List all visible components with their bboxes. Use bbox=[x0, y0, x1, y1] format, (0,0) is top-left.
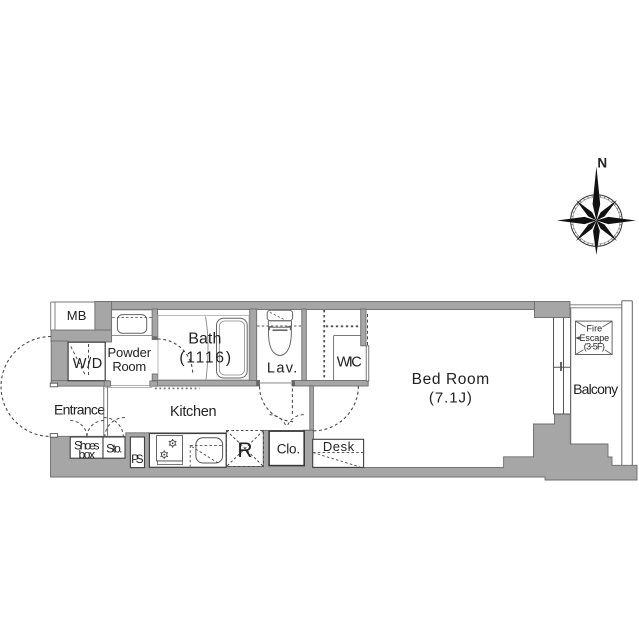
svg-text:N: N bbox=[597, 156, 607, 171]
svg-text:WIC: WIC bbox=[337, 354, 362, 370]
svg-text:Bath: Bath bbox=[188, 330, 221, 347]
svg-text:Sto.: Sto. bbox=[106, 441, 122, 455]
svg-text:Lav.: Lav. bbox=[267, 361, 297, 377]
svg-text:Desk: Desk bbox=[323, 439, 355, 454]
svg-text:Balcony: Balcony bbox=[573, 381, 618, 397]
svg-text:Bed Room: Bed Room bbox=[412, 371, 490, 388]
svg-text:Powder: Powder bbox=[107, 345, 151, 360]
svg-text:W/D: W/D bbox=[73, 356, 103, 372]
svg-text:Clo.: Clo. bbox=[277, 442, 300, 457]
svg-text:Entrance: Entrance bbox=[54, 402, 105, 418]
svg-text:Kitchen: Kitchen bbox=[170, 404, 217, 420]
svg-text:Room: Room bbox=[112, 359, 146, 374]
svg-text:box: box bbox=[79, 447, 96, 461]
svg-text:MB: MB bbox=[67, 308, 87, 323]
svg-text:(1116): (1116) bbox=[179, 350, 231, 367]
svg-text:PS: PS bbox=[131, 452, 144, 466]
svg-text:(7.1J): (7.1J) bbox=[429, 390, 472, 407]
svg-text:R: R bbox=[237, 439, 252, 462]
svg-text:(3-5F): (3-5F) bbox=[584, 341, 605, 351]
